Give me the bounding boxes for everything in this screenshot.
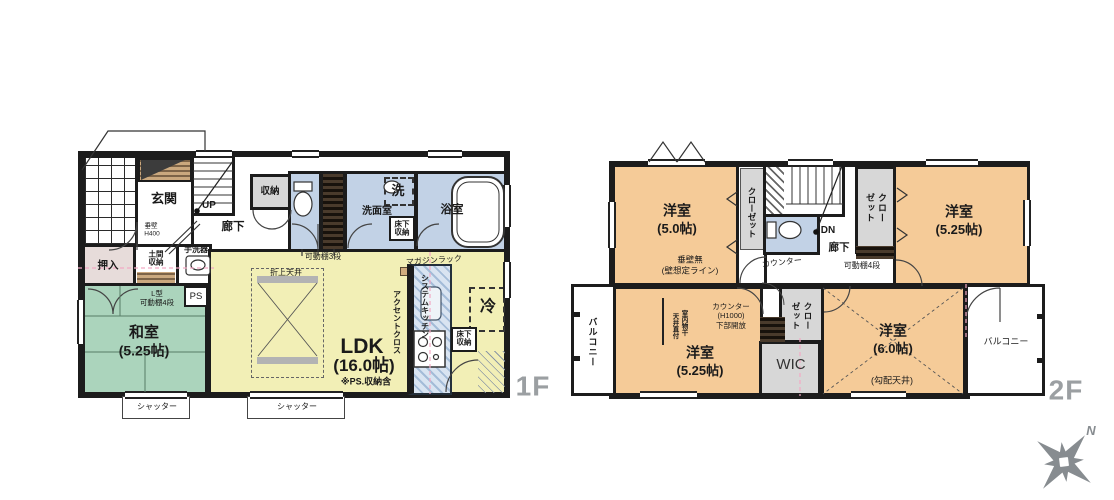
f1-label-sen: 洗 bbox=[391, 184, 404, 198]
f1-label-genkan: 玄関 bbox=[151, 192, 177, 206]
compass-icon bbox=[1016, 414, 1111, 500]
f2-balconyR-tick2 bbox=[1037, 358, 1045, 363]
f2-label-y525-top-size: (5.25帖) bbox=[936, 223, 983, 237]
f2-balconyL-tick1 bbox=[572, 312, 580, 317]
f2-counter-shelf bbox=[760, 317, 785, 342]
f1-entrance-porch bbox=[82, 155, 138, 247]
f2-room-toilet bbox=[763, 214, 820, 255]
f2-label-dn: DN bbox=[821, 226, 835, 237]
f1-label-rouka: 廊下 bbox=[222, 221, 245, 233]
f2-label-y60-size: (6.0帖) bbox=[873, 342, 913, 356]
f1-label-washitsu-size: (5.25帖) bbox=[119, 344, 170, 359]
f1-shoe-cabinet bbox=[138, 158, 192, 182]
f2-label-y525-bottom: 洋室 bbox=[686, 346, 714, 361]
f1-oriage-bar-bottom bbox=[257, 357, 318, 364]
f1-window-top-bath bbox=[428, 150, 462, 158]
f2-window-bottom-y525b bbox=[640, 391, 697, 399]
f1-label-yukashita-ldk: 床下収納 bbox=[456, 331, 473, 348]
f2-window-top-stairs bbox=[788, 159, 833, 167]
f1-label-lshelf-1: L型 bbox=[151, 290, 163, 298]
f1-floor-label: 1F bbox=[516, 371, 551, 400]
f1-label-kitchen: システムキッチン bbox=[420, 268, 431, 344]
f1-window-left-washitsu bbox=[77, 300, 85, 344]
f2-label-kadou4: 可動棚4段 bbox=[844, 262, 880, 270]
f2-label-y60: 洋室 bbox=[879, 324, 907, 339]
f1-label-kadou3: 可動棚3段 bbox=[305, 253, 341, 261]
f1-label-tearai: 手洗器 bbox=[184, 246, 208, 254]
f1-label-shutter-1: シャッター bbox=[137, 403, 177, 411]
f2-balconyL-tick2 bbox=[572, 356, 580, 361]
f1-label-oshiire: 押入 bbox=[98, 260, 119, 271]
f2-label-counterh-2: (H1000) bbox=[717, 312, 744, 320]
f2-label-monohoshi-2: 天井直付 bbox=[669, 308, 679, 344]
floor-plan-canvas: 玄関 UP 収納 廊下 垂壁 H400 押入 土間収納 手洗器 PS L型 可動… bbox=[0, 0, 1114, 500]
f2-label-closet-mid: クローゼット bbox=[790, 298, 814, 334]
f1-label-rei: 冷 bbox=[480, 300, 496, 317]
f1-label-ldk-size: (16.0帖) bbox=[333, 357, 394, 375]
f1-window-bottom-washitsu bbox=[125, 391, 187, 399]
f2-label-monohoshi-1: 室内物干 bbox=[678, 305, 688, 341]
f2-label-y525-top: 洋室 bbox=[945, 205, 973, 220]
f1-window-right-ldk bbox=[503, 262, 511, 298]
f2-label-y50-size: (5.0帖) bbox=[657, 222, 697, 236]
f1-label-ps: PS bbox=[190, 292, 203, 302]
f2-label-wic: WIC bbox=[776, 357, 805, 373]
f2-label-closet-left: クローゼット bbox=[746, 172, 758, 252]
f1-window-bottom-ldk bbox=[250, 391, 343, 399]
f2-label-counterh-1: カウンター bbox=[712, 303, 750, 311]
f2-stairs-hatch bbox=[766, 167, 784, 214]
f1-window-right-bath bbox=[503, 185, 511, 227]
f1-label-washitsu: 和室 bbox=[129, 325, 159, 341]
compass-n-label: N bbox=[1086, 424, 1095, 438]
f2-label-kobai: (勾配天井) bbox=[871, 376, 913, 385]
f2-label-tarekabe-nashi: 垂壁無 bbox=[677, 256, 703, 265]
f1-label-yukashita-senmen: 床下収納 bbox=[394, 221, 411, 238]
f2-label-balcony-left: バルコニー bbox=[587, 312, 600, 372]
f1-corner-hatch bbox=[478, 351, 505, 393]
f2-window-left-y50 bbox=[608, 202, 616, 248]
f1-label-shutter-2: シャッター bbox=[277, 403, 317, 411]
f2-label-balcony-right: バルコニー bbox=[984, 337, 1029, 346]
f1-linen-shelf bbox=[320, 171, 346, 252]
f1-label-accent: アクセントクロス bbox=[392, 284, 403, 360]
f1-window-top-stairs bbox=[196, 150, 232, 158]
f2-shelf-kadou4 bbox=[856, 246, 894, 259]
f2-window-top-doors bbox=[648, 159, 705, 167]
f1-label-yoku: 浴室 bbox=[441, 204, 464, 216]
f2-label-rouka: 廊下 bbox=[829, 242, 850, 253]
f1-label-ldk: LDK bbox=[340, 336, 383, 358]
f1-label-tarekabe-1: 垂壁 bbox=[145, 224, 158, 231]
f2-label-y50: 洋室 bbox=[663, 204, 691, 219]
f2-label-y525-bottom-size: (5.25帖) bbox=[677, 364, 724, 378]
f2-floor-label: 2F bbox=[1049, 375, 1084, 404]
f1-doma-floor-stripes bbox=[137, 272, 175, 283]
f2-window-right-y525 bbox=[1023, 200, 1031, 246]
f1-label-shunou: 収納 bbox=[260, 187, 279, 197]
f1-label-doma: 土間収納 bbox=[148, 251, 165, 268]
f1-label-ldk-note: ※PS.収納含 bbox=[341, 377, 391, 386]
f2-balconyR-tick1 bbox=[1037, 314, 1045, 319]
f2-label-tarekabe-line: (壁想定ライン) bbox=[662, 267, 719, 276]
f2-label-counterh-3: 下部開放 bbox=[716, 322, 746, 330]
f2-window-bottom-y60 bbox=[851, 391, 906, 399]
f2-window-top-y525 bbox=[926, 159, 978, 167]
f1-label-senmen: 洗面室 bbox=[362, 207, 392, 218]
f1-label-lshelf-2: 可動棚4段 bbox=[140, 299, 174, 307]
f1-label-up: UP bbox=[202, 201, 216, 212]
f1-window-top-toilet bbox=[292, 150, 319, 158]
f1-label-tarekabe-2: H400 bbox=[144, 232, 160, 239]
f1-label-oriage: 折上天井 bbox=[270, 269, 302, 277]
f1-room-toilet bbox=[288, 171, 322, 252]
f2-label-closet-right: クローゼット bbox=[864, 190, 888, 226]
